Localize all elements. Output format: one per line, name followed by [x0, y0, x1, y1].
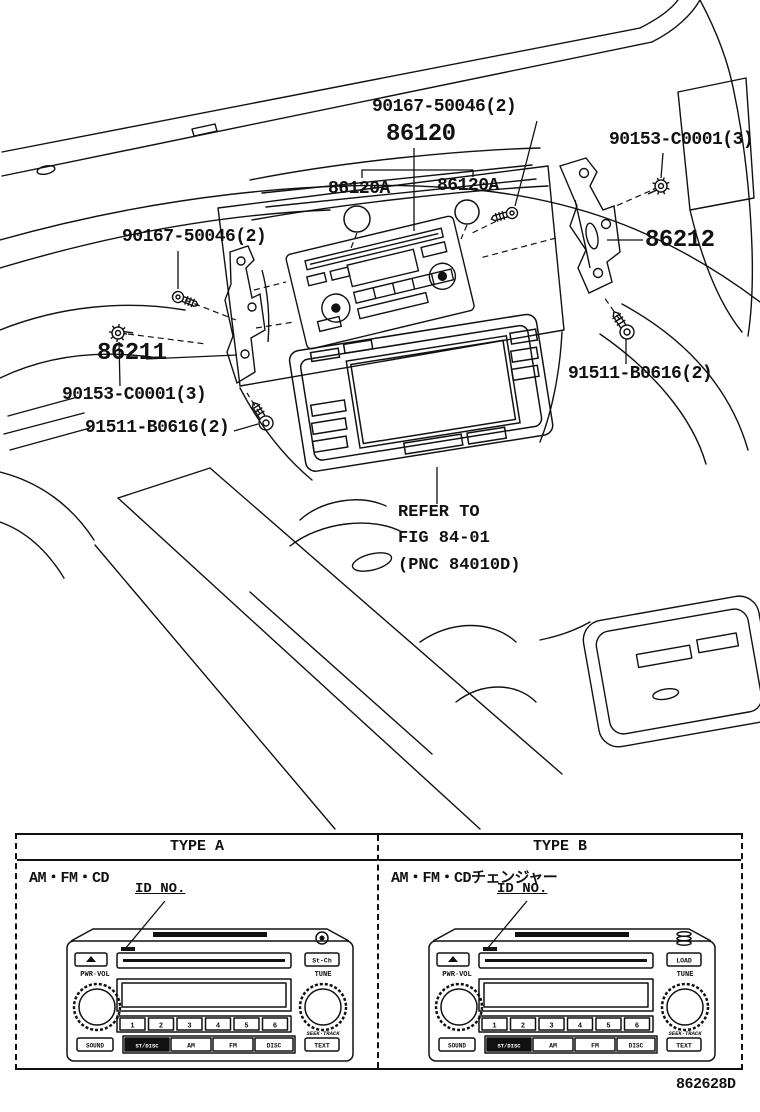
- preset-4: 4: [578, 1023, 582, 1031]
- seek-label: SEEK·TRACK: [306, 1030, 340, 1037]
- refer-note-line3: (PNC 84010D): [398, 556, 520, 575]
- label-knob-left: 86120A: [328, 179, 390, 199]
- bolt-icon: [247, 399, 275, 433]
- screw-icon: [490, 206, 519, 224]
- display-unit: [288, 313, 554, 473]
- label-screw-left: 90167-50046(2): [122, 227, 266, 247]
- console-armrest: [580, 593, 760, 750]
- type-a-column: TYPE A AM・FM・CD ID NO.: [17, 835, 379, 1068]
- fm-button-label: FM: [591, 1043, 599, 1050]
- type-b-cell: AM・FM・CDチェンジャー ID NO.: [379, 861, 741, 1068]
- type-a-cell: AM・FM・CD ID NO.: [17, 861, 377, 1068]
- label-bolt-left: 91511-B0616(2): [85, 418, 229, 438]
- volume-knob-label: PWR·VOL: [80, 971, 109, 979]
- tune-knob: [662, 984, 708, 1030]
- load-button-label: LOAD: [676, 958, 692, 965]
- tune-knob-label: TUNE: [315, 971, 332, 979]
- refer-note-line1: REFER TO: [398, 503, 480, 522]
- volume-knob: [436, 984, 482, 1030]
- type-a-radio-drawing: St-Ch PWR·VOL TUNE: [17, 861, 381, 1068]
- label-clip-right: 90153-C0001(3): [609, 130, 753, 150]
- id-leader-line: [125, 901, 165, 949]
- text-button-label: TEXT: [314, 1043, 330, 1050]
- bracket-right-86212: [560, 158, 620, 293]
- type-a-header: TYPE A: [17, 835, 377, 861]
- preset-6: 6: [273, 1023, 277, 1031]
- volume-knob-label: PWR·VOL: [442, 971, 471, 979]
- refer-note: REFER TOFIG 84-01(PNC 84010D): [398, 500, 520, 579]
- display-window: [479, 979, 653, 1011]
- label-bracket-left: 86211: [97, 340, 167, 367]
- preset-5: 5: [244, 1023, 248, 1031]
- mode-button-label: ST/DISC: [497, 1043, 521, 1050]
- id-plate-mark: [121, 947, 135, 951]
- radio-knobs-exploded: [344, 200, 479, 232]
- mode-button-label: ST/DISC: [135, 1043, 159, 1050]
- id-plate-mark: [483, 947, 497, 951]
- bolt-icon: [608, 308, 637, 342]
- label-receiver: 86120: [386, 121, 456, 148]
- display-window: [117, 979, 291, 1011]
- label-knob-right: 86120A: [437, 176, 499, 196]
- preset-2: 2: [521, 1023, 525, 1031]
- label-bolt-right: 91511-B0616(2): [568, 364, 712, 384]
- preset-2: 2: [159, 1023, 163, 1031]
- label-bracket-right: 86212: [645, 227, 715, 254]
- side-button-label: St-Ch: [312, 958, 332, 965]
- radio-receiver-unit: [285, 215, 475, 349]
- label-screw-top: 90167-50046(2): [372, 97, 516, 117]
- parts-diagram-page: 90167-50046(2) 86120 86120A 86120A 90153…: [0, 0, 760, 1112]
- type-b-header: TYPE B: [379, 835, 741, 861]
- disc-button-label: DISC: [629, 1043, 644, 1050]
- preset-5: 5: [606, 1023, 610, 1031]
- disc-button-label: DISC: [267, 1043, 282, 1050]
- eject-icon: [86, 956, 96, 962]
- preset-3: 3: [187, 1023, 191, 1031]
- refer-note-line2: FIG 84-01: [398, 529, 490, 548]
- preset-6: 6: [635, 1023, 639, 1031]
- am-button-label: AM: [549, 1043, 557, 1050]
- preset-1: 1: [130, 1023, 134, 1031]
- type-b-column: TYPE B AM・FM・CDチェンジャー ID NO.: [379, 835, 741, 1068]
- leader-lines: [119, 121, 663, 504]
- sound-button-label: SOUND: [448, 1043, 466, 1050]
- type-b-radio-drawing: LOAD PWR·VOL TUNE: [379, 861, 743, 1068]
- sound-button-label: SOUND: [86, 1043, 104, 1050]
- tune-knob-label: TUNE: [677, 971, 694, 979]
- figure-code: 862628D: [676, 1076, 736, 1093]
- type-comparison-table: TYPE A AM・FM・CD ID NO.: [15, 833, 743, 1070]
- cd-icon: [316, 932, 328, 944]
- clip-screw-icon: [644, 174, 673, 200]
- cd-changer-icon: [677, 932, 691, 945]
- tune-knob: [300, 984, 346, 1030]
- am-button-label: AM: [187, 1043, 195, 1050]
- preset-1: 1: [492, 1023, 496, 1031]
- eject-icon: [448, 956, 458, 962]
- preset-4: 4: [216, 1023, 220, 1031]
- id-leader-line: [487, 901, 527, 949]
- volume-knob: [74, 984, 120, 1030]
- dashboard-outline: [0, 0, 760, 829]
- seek-label: SEEK·TRACK: [668, 1030, 702, 1037]
- text-button-label: TEXT: [676, 1043, 692, 1050]
- fm-button-label: FM: [229, 1043, 237, 1050]
- preset-3: 3: [549, 1023, 553, 1031]
- label-clip-left: 90153-C0001(3): [62, 385, 206, 405]
- dashboard-diagram: [0, 0, 760, 830]
